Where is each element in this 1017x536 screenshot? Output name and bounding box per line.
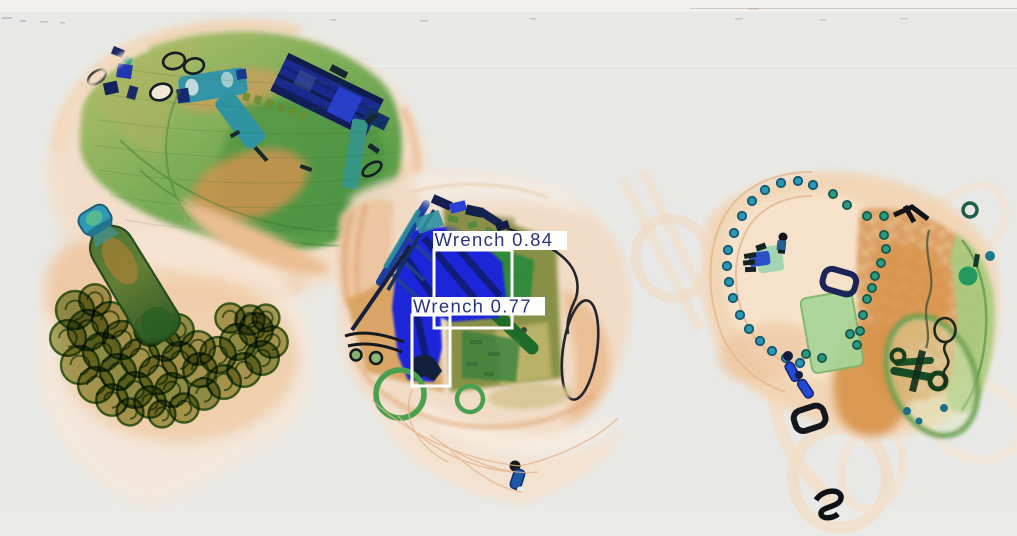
svg-text:Wrench 0.84: Wrench 0.84 — [435, 229, 554, 250]
svg-text:Wrench 0.77: Wrench 0.77 — [413, 296, 532, 317]
